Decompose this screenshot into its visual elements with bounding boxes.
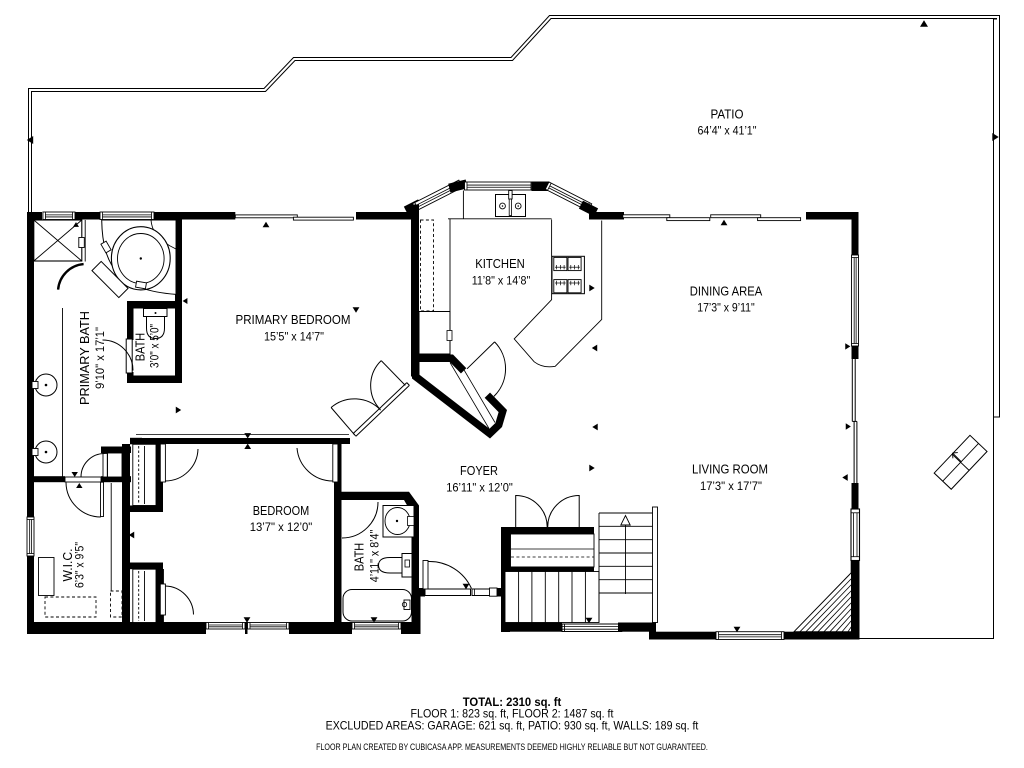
svg-text:DINING AREA: DINING AREA: [690, 285, 763, 299]
svg-text:BEDROOM: BEDROOM: [253, 504, 310, 518]
svg-text:BATH: BATH: [353, 543, 367, 572]
svg-text:17’3" x 9’11": 17’3" x 9’11": [697, 301, 755, 315]
svg-text:15’5" x 14’7": 15’5" x 14’7": [264, 330, 324, 344]
svg-text:BATH: BATH: [134, 333, 148, 362]
svg-text:13’7" x 12’0": 13’7" x 12’0": [250, 520, 313, 534]
svg-text:LIVING ROOM: LIVING ROOM: [692, 463, 768, 477]
svg-text:PRIMARY BEDROOM: PRIMARY BEDROOM: [236, 313, 351, 327]
svg-text:64’4" x 41’1": 64’4" x 41’1": [698, 124, 757, 138]
svg-text:9’10" x 17’1": 9’10" x 17’1": [93, 327, 107, 389]
svg-text:EXCLUDED AREAS: GARAGE: 621 sq: EXCLUDED AREAS: GARAGE: 621 sq. ft, PATI…: [326, 719, 699, 733]
svg-text:FLOOR PLAN CREATED BY CUBICASA: FLOOR PLAN CREATED BY CUBICASA APP. MEAS…: [316, 741, 708, 752]
svg-text:PRIMARY BATH: PRIMARY BATH: [78, 311, 92, 405]
svg-text:17’3" x 17’7": 17’3" x 17’7": [700, 479, 762, 493]
svg-text:3’0" x 5’0": 3’0" x 5’0": [148, 324, 162, 368]
svg-text:FOYER: FOYER: [460, 464, 498, 478]
svg-text:PATIO: PATIO: [711, 107, 744, 122]
svg-text:11’8" x 14’8": 11’8" x 14’8": [472, 274, 531, 288]
svg-text:KITCHEN: KITCHEN: [475, 257, 525, 271]
svg-text:6’3" x 9’5": 6’3" x 9’5": [73, 542, 87, 588]
svg-text:4’11" x 8’4": 4’11" x 8’4": [368, 530, 382, 583]
svg-text:16’11" x 12’0": 16’11" x 12’0": [446, 481, 513, 495]
